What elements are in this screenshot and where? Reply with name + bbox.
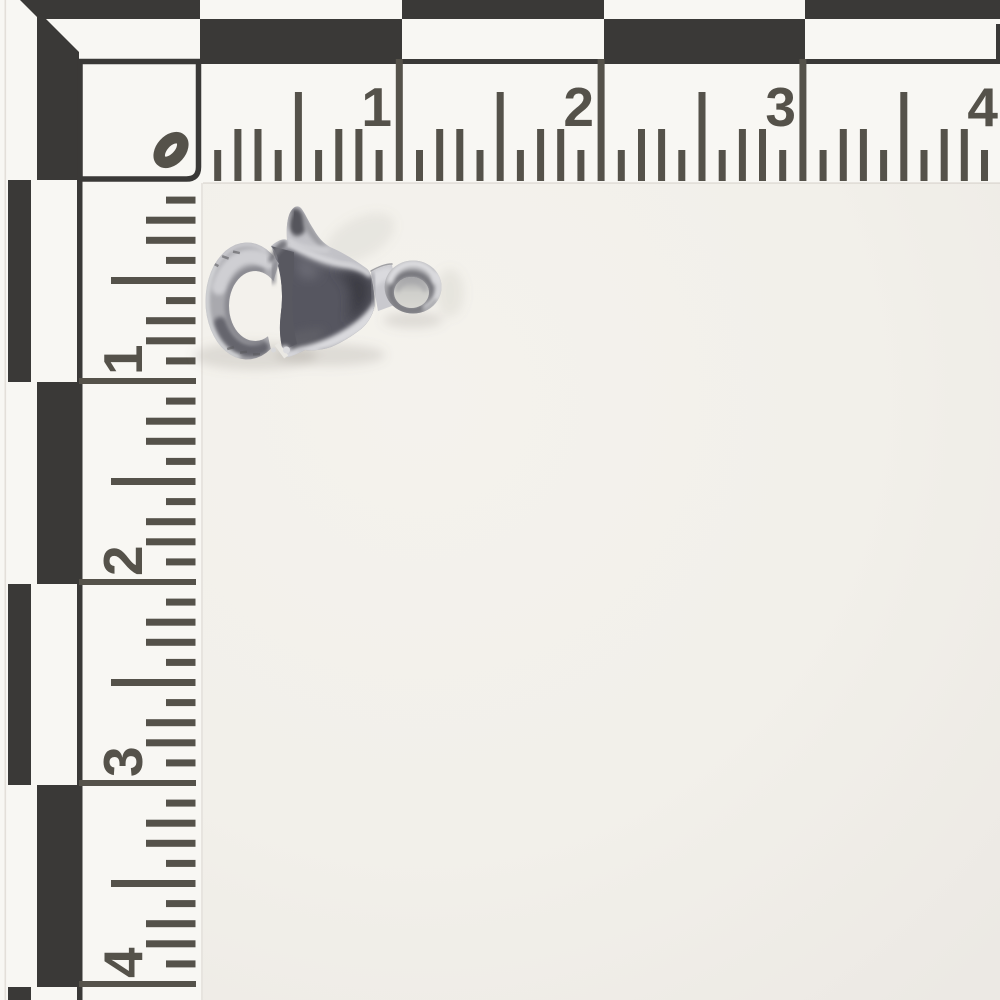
svg-text:3: 3 <box>92 746 154 777</box>
svg-text:3: 3 <box>765 76 796 138</box>
svg-text:1: 1 <box>361 76 392 138</box>
svg-text:1: 1 <box>92 344 154 375</box>
svg-text:4: 4 <box>92 947 154 978</box>
svg-text:4: 4 <box>967 76 998 138</box>
svg-text:2: 2 <box>563 76 594 138</box>
svg-text:2: 2 <box>92 545 154 576</box>
